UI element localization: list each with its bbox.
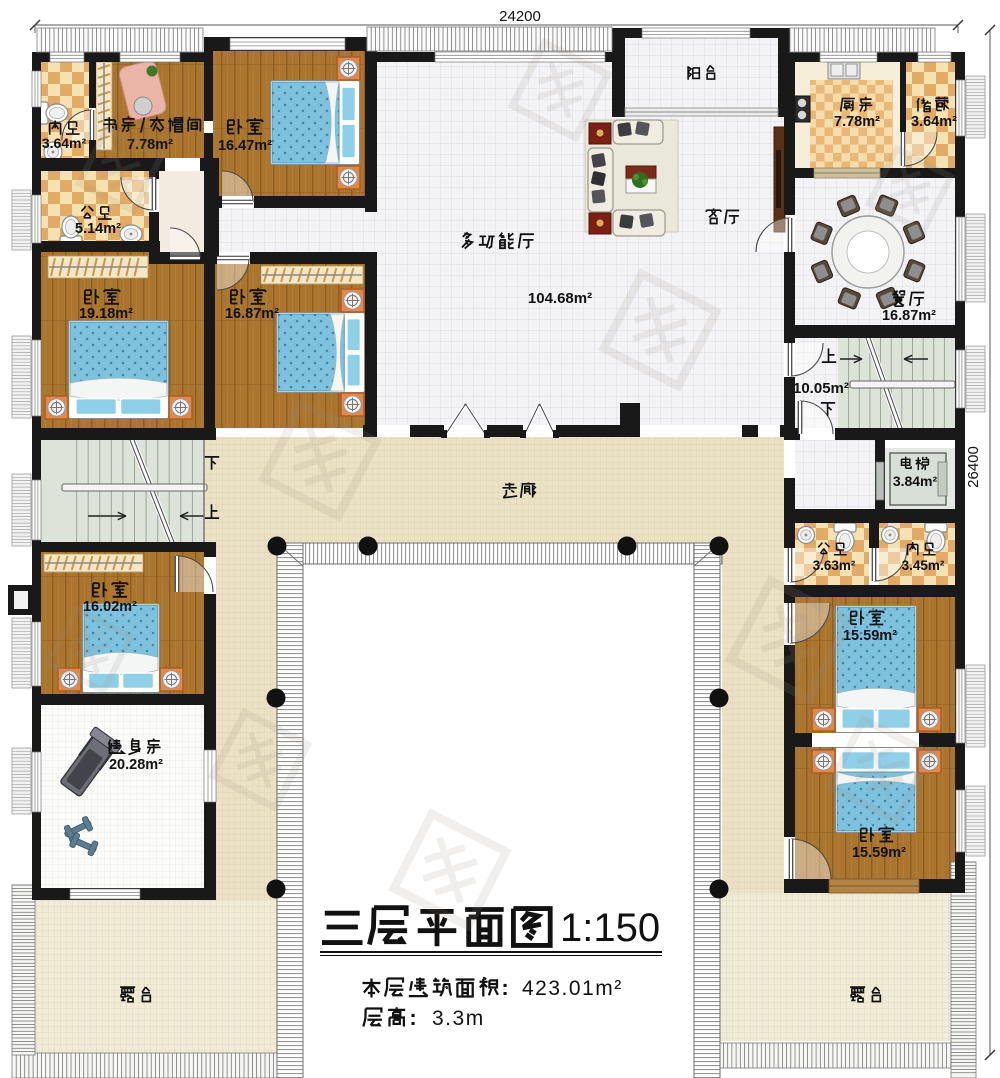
svg-text:3.63m²: 3.63m² <box>813 558 856 573</box>
svg-text:3.3m: 3.3m <box>432 1007 485 1030</box>
svg-text:19.18m²: 19.18m² <box>79 306 133 322</box>
svg-text:3.64m²: 3.64m² <box>42 135 87 151</box>
svg-text:16.02m²: 16.02m² <box>83 599 137 615</box>
svg-text:3.45m²: 3.45m² <box>902 558 945 573</box>
svg-text:15.59m²: 15.59m² <box>843 628 897 644</box>
svg-text:5.14m²: 5.14m² <box>75 221 121 237</box>
svg-text:3.84m²: 3.84m² <box>893 473 938 489</box>
svg-text:20.28m²: 20.28m² <box>109 757 163 773</box>
svg-text:10.05m²: 10.05m² <box>793 380 849 397</box>
svg-text:15.59m²: 15.59m² <box>852 845 906 861</box>
svg-text:1:150: 1:150 <box>560 906 660 950</box>
svg-text:3.64m²: 3.64m² <box>911 114 957 130</box>
svg-text:16.87m²: 16.87m² <box>882 308 936 324</box>
svg-text:16.87m²: 16.87m² <box>225 306 279 322</box>
svg-text:24200: 24200 <box>499 8 541 25</box>
svg-text::: : <box>501 975 508 1000</box>
svg-text:423.01m²: 423.01m² <box>522 977 623 1000</box>
svg-text:16.47m²: 16.47m² <box>218 138 272 154</box>
svg-text:7.78m²: 7.78m² <box>834 114 880 130</box>
svg-text:104.68m²: 104.68m² <box>528 290 592 307</box>
svg-text::: : <box>409 1005 416 1030</box>
svg-text:26400: 26400 <box>965 446 982 488</box>
